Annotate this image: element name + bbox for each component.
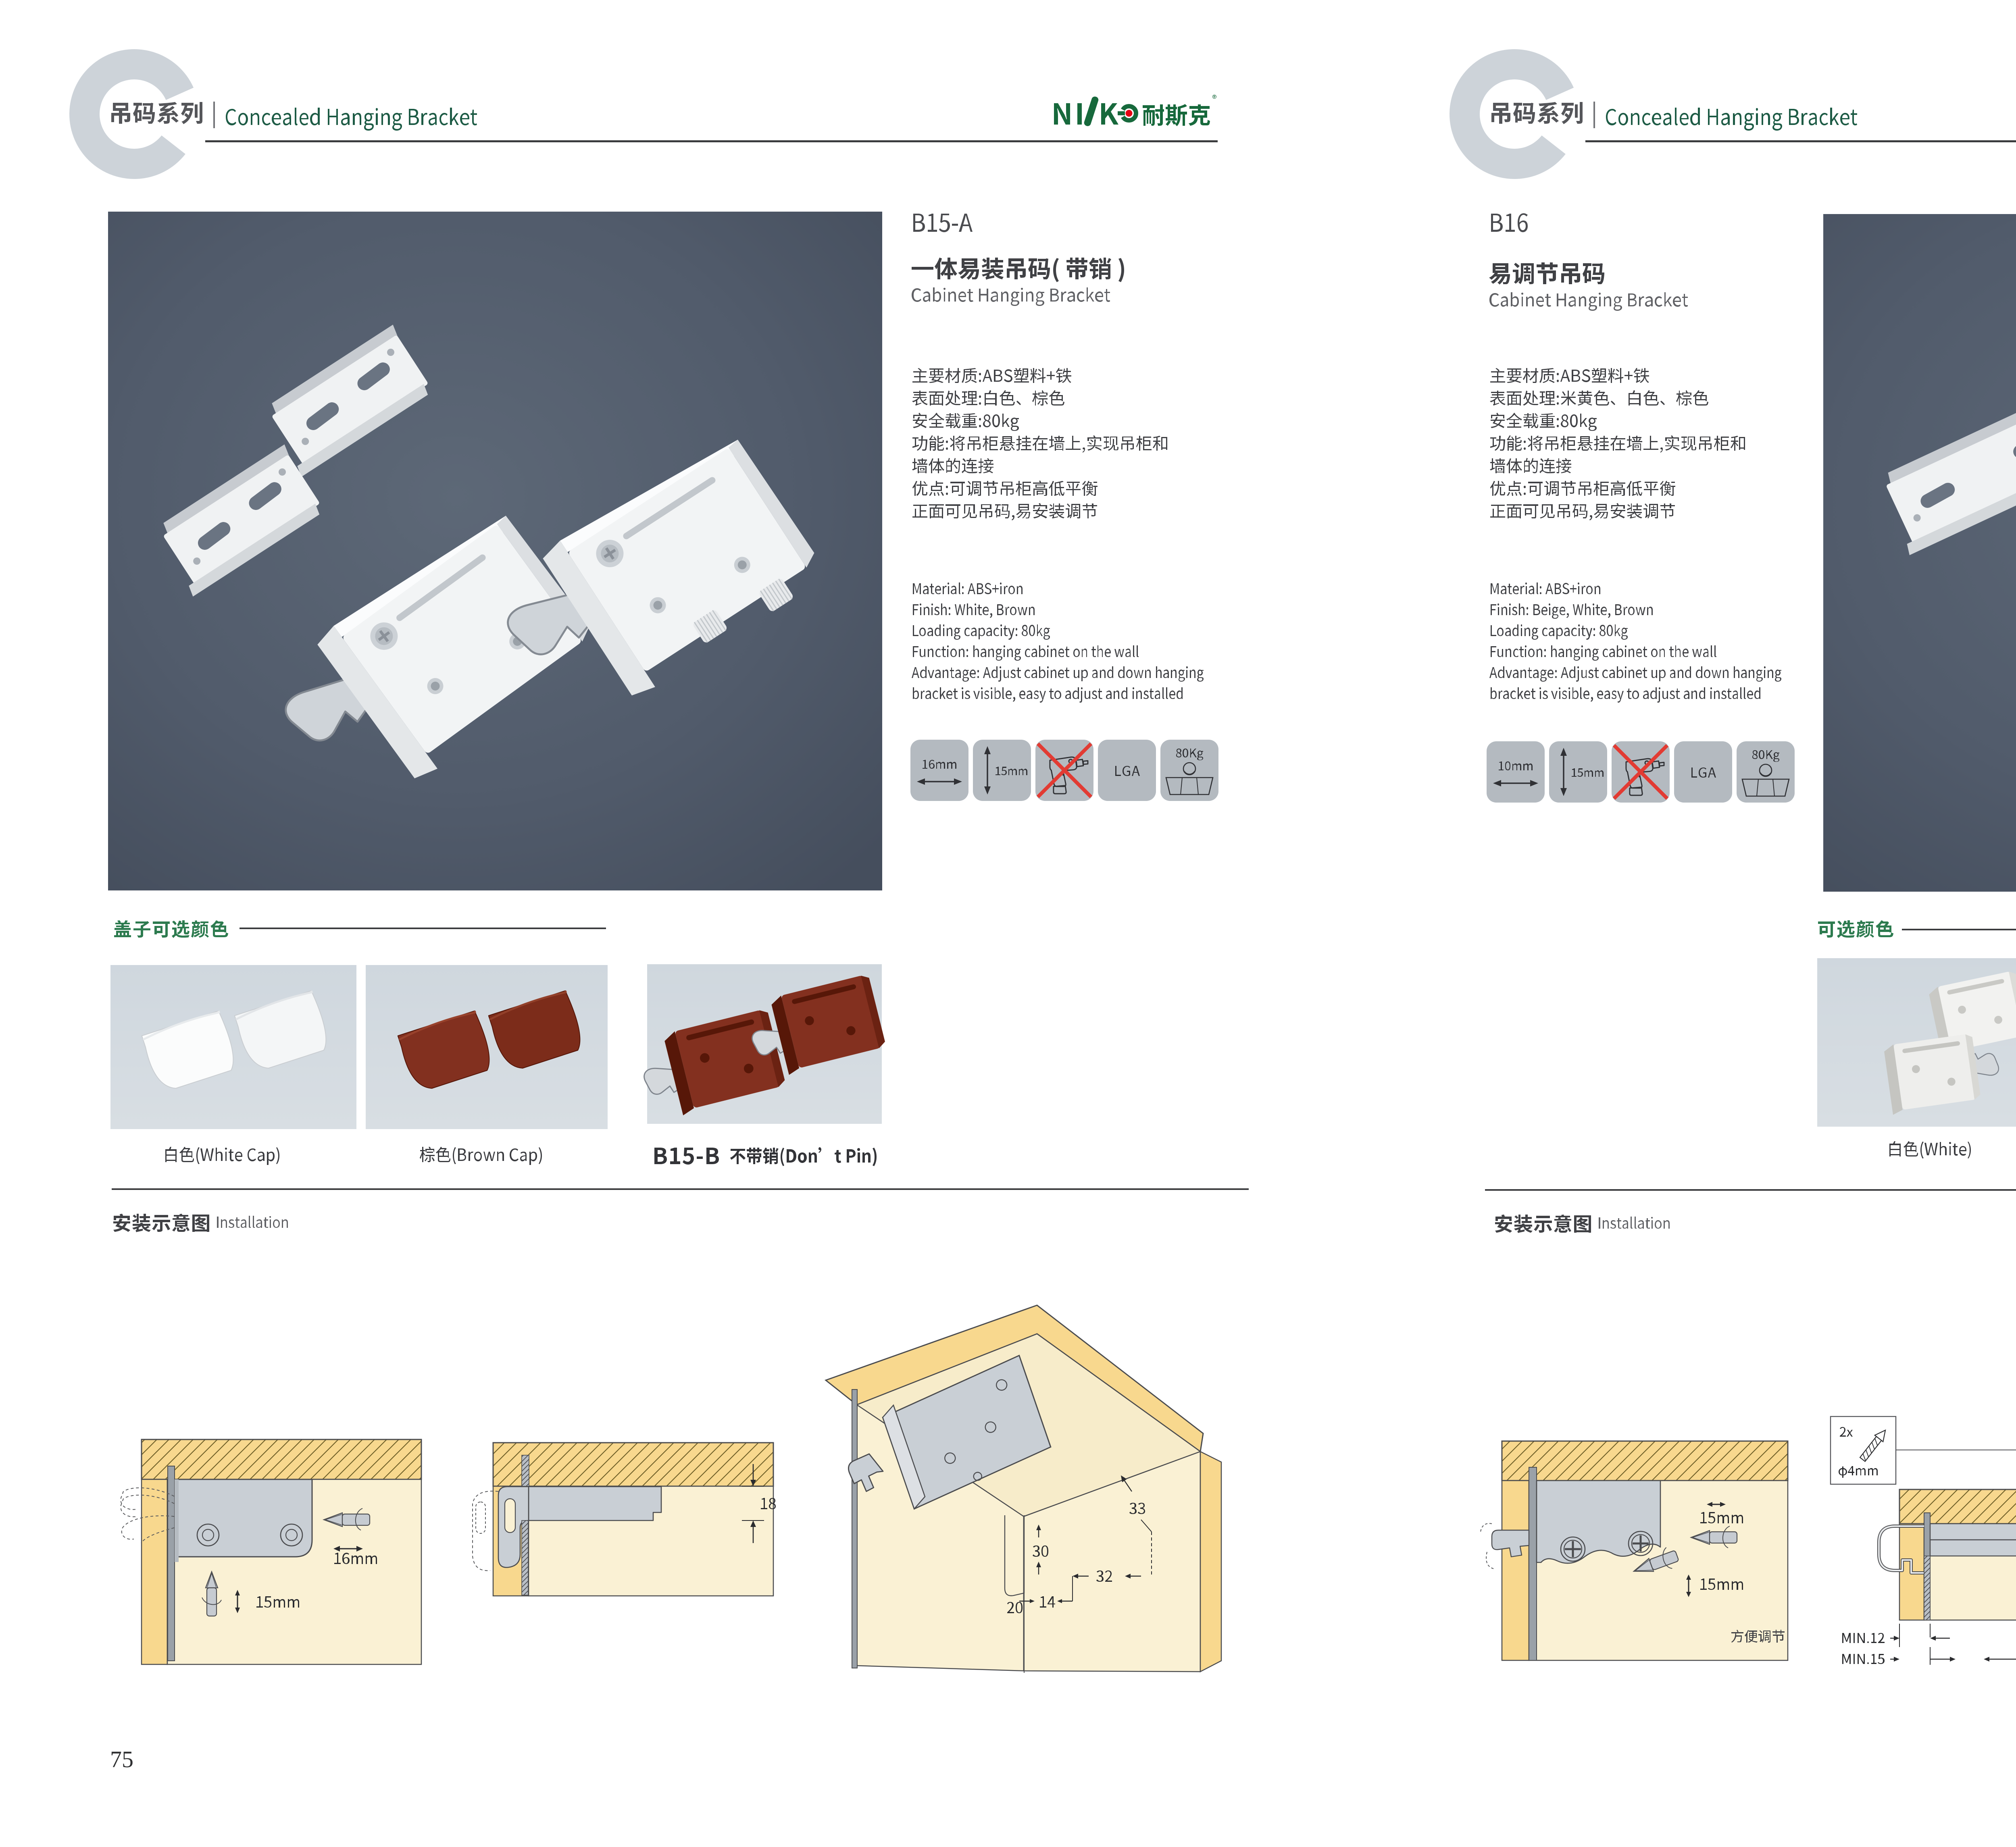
svg-text:75: 75: [110, 1746, 133, 1772]
